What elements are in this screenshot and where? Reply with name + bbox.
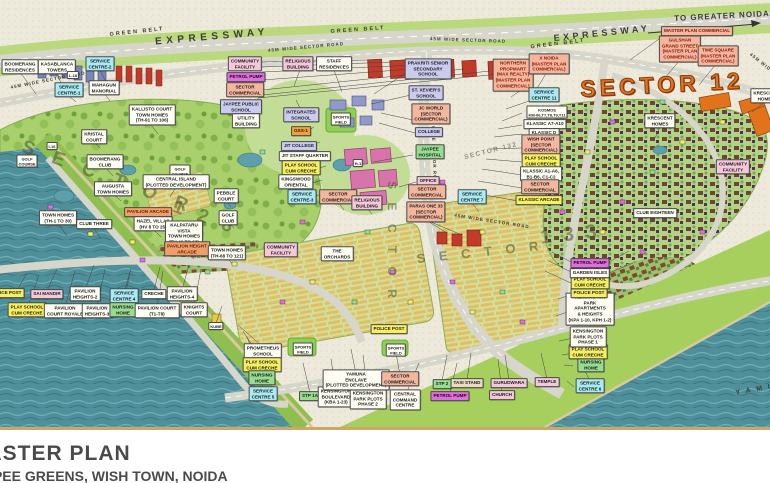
title-bar: MASTER PLAN JAYPEE GREENS, WISH TOWN, NO… xyxy=(0,427,770,483)
map-label: SERVICE CENTRE-1 xyxy=(55,82,84,97)
map-label: SECTOR COMMERCIAL xyxy=(521,179,559,194)
map-label: SERVICE CENTRE-2 xyxy=(86,56,115,71)
map-label: KENSINGTON PARK PLOTS PHASE 1 xyxy=(570,326,607,347)
map-label: I-16 xyxy=(47,142,58,150)
map-label: SERVICE CENTRE 11 xyxy=(528,87,559,102)
map-label: INTEGRATED SCHOOL xyxy=(283,107,319,122)
map-label: POLICE POST xyxy=(571,288,608,298)
map-label: POLICE POST xyxy=(0,288,24,298)
map-label: SPORTS FIELD xyxy=(331,113,351,126)
map-label: SECTOR COMMERCIAL xyxy=(226,82,264,97)
map-label: YAMUNA ENCLAVE (PLOTTED DEVELOPMENT) xyxy=(323,369,390,390)
map-label: THE ORCHARDS xyxy=(321,246,354,261)
map-label: KRESCENT HOMES xyxy=(644,113,675,128)
map-label: TOWN HOMES (TH-1 TO 30) xyxy=(39,210,77,225)
map-label: CHURCH xyxy=(489,390,515,400)
map-label: KUBE xyxy=(208,322,223,330)
map-label: AUGUSTA TOWN HOMES xyxy=(94,181,132,196)
map-label: SECTOR COMMERCIAL xyxy=(381,371,419,386)
map-label: SERVICE CENTRE 6 xyxy=(576,378,605,393)
map-label: KLASSIC ARCADE xyxy=(516,195,563,205)
map-label: CRECHE xyxy=(141,289,166,299)
map-label: COMMUNITY FACILITY xyxy=(228,56,262,71)
map-label: SPORTS FIELD xyxy=(293,343,313,356)
map-label: CLUB THREE xyxy=(76,219,112,229)
map-label: SAI MANDIR xyxy=(30,289,63,299)
map-label: TIME SQUARE (MASTER PLAN COMMERCIAL) xyxy=(698,45,739,66)
map-label: TAXI STAND xyxy=(451,378,484,388)
map-label: SERVICE CENTRE-3 xyxy=(288,189,317,204)
map-label: KINGSWOOD ORIENTAL xyxy=(278,174,313,189)
map-canvas: BOOMERANG RESIDENCESKASABLANCA TOWERSSER… xyxy=(0,0,770,427)
master-plan-title: MASTER PLAN xyxy=(0,442,131,466)
map-label: JAYPEE HOSPITAL xyxy=(416,144,445,159)
map-label: POLICE POST xyxy=(371,324,408,334)
map-label: H-1 xyxy=(353,159,363,167)
map-label: PAVILION HEIGHTS-3 xyxy=(82,303,113,318)
map-label: NURSING HOME xyxy=(248,370,275,385)
map-label: KOSMOS KM-06,T7,T8,T9,T11 xyxy=(526,106,567,119)
map-label: PAVILION HEIGHTS-2 xyxy=(70,286,101,301)
map-label: SECTOR COMMERCIAL xyxy=(408,184,446,199)
map-label: BOOMERANG CLUB xyxy=(87,154,124,169)
map-label: KALLISTO COURT TOWN HOMES (TH-91 TO 106) xyxy=(129,104,176,125)
map-label: COLLEGE xyxy=(415,127,443,137)
map-label: PETROL PUMP xyxy=(430,391,469,401)
map-label: SERVICE CENTRE 7 xyxy=(458,189,487,204)
map-label: JIT COLLEGE xyxy=(281,141,317,151)
map-label: PETROL PUMP xyxy=(570,258,609,268)
map-label: JC WORLD (SECTOR COMMERCIAL) xyxy=(411,103,450,124)
map-label: NORTHERN PROPMART (MAX REALTY) (MASTER P… xyxy=(493,59,534,92)
map-label: GOLF COURSE xyxy=(16,155,37,168)
map-label: TEMPLE xyxy=(535,377,560,387)
map-label: SERVICE CENTRE 5 xyxy=(249,386,278,401)
map-label: KRISTAL COURT xyxy=(81,129,107,144)
map-label: RELIGIOUS BUILDING xyxy=(351,195,382,210)
map-label: UTILITY BUILDING xyxy=(232,113,260,128)
map-label: PAVILION HEIGHTS-4 xyxy=(167,286,198,301)
sector-watermark: S E C T O R xyxy=(385,181,399,303)
map-label: PARAS ONE 33 (SECTOR COMMERCIAL) xyxy=(406,201,445,222)
map-label: RELIGIOUS BUILDING xyxy=(282,56,313,71)
map-label: ST. XEVIER'S SCHOOL xyxy=(409,85,444,100)
map-label: BOOMERANG RESIDENCES xyxy=(2,59,39,74)
map-label: CENTRAL ISLAND (PLOTTED DEVELOPMENT) xyxy=(143,174,210,189)
map-label: X NOIDA (MASTER PLAN COMMERCIAL) xyxy=(529,53,570,74)
map-label: NURSING HOME xyxy=(109,302,136,317)
map-label: STAFF RESIDENCES xyxy=(316,56,352,71)
map-label: PEBBLE COURT xyxy=(214,188,239,203)
map-label: MASTER PLAN COMMERCIAL xyxy=(661,26,733,36)
map-label: PAVILION COURT ROYALE xyxy=(44,303,86,318)
map-label: KNIGHTS COURT xyxy=(181,302,208,317)
map-label: COMMUNITY FACILITY xyxy=(264,242,298,257)
map-label: GSS-1 xyxy=(291,126,311,136)
map-label: PETROL PUMP xyxy=(226,72,265,82)
map-label: KENSINGTON PARK PLOTS PHASE 2 xyxy=(350,388,387,409)
map-label: KRESCENT HOMES xyxy=(750,88,770,103)
map-label: PAVILION COURT (T1-T8) xyxy=(135,303,180,318)
master-plan-page: BOOMERANG RESIDENCESKASABLANCA TOWERSSER… xyxy=(0,0,770,483)
map-label: PAVILION HEIGHT ARCADE xyxy=(164,241,210,256)
map-label: GURUDWARA xyxy=(491,378,528,388)
map-label: GULSHAN GRAND STREET (MASTER PLAN COMMER… xyxy=(659,36,701,63)
map-label: GARDEN ISLES xyxy=(570,268,610,278)
map-label: CENTRAL COMMAND CENTRE xyxy=(390,389,421,410)
map-label: PRAKRITI SENIOR SECONDARY SCHOOL xyxy=(405,58,452,79)
map-label: CLUB EIGHTEEN xyxy=(633,208,677,218)
map-label: NURSING HOME xyxy=(577,357,604,372)
map-label: COMMUNITY FACILITY xyxy=(716,159,750,174)
map-label: PLAY SCHOOL CUM CRECHE xyxy=(8,302,47,317)
project-subtitle: JAYPEE GREENS, WISH TOWN, NOIDA xyxy=(0,468,228,483)
map-label: SPORTS FIELD xyxy=(386,344,406,357)
map-label: L-18 xyxy=(67,71,79,79)
map-label: MAHAGUN MANORIAL xyxy=(89,80,120,95)
map-label: GOLF CLUB xyxy=(219,210,238,225)
map-label: TOWN HOMES (TH-68 TO 121) xyxy=(208,245,246,260)
map-label: STP 2 xyxy=(433,379,452,389)
